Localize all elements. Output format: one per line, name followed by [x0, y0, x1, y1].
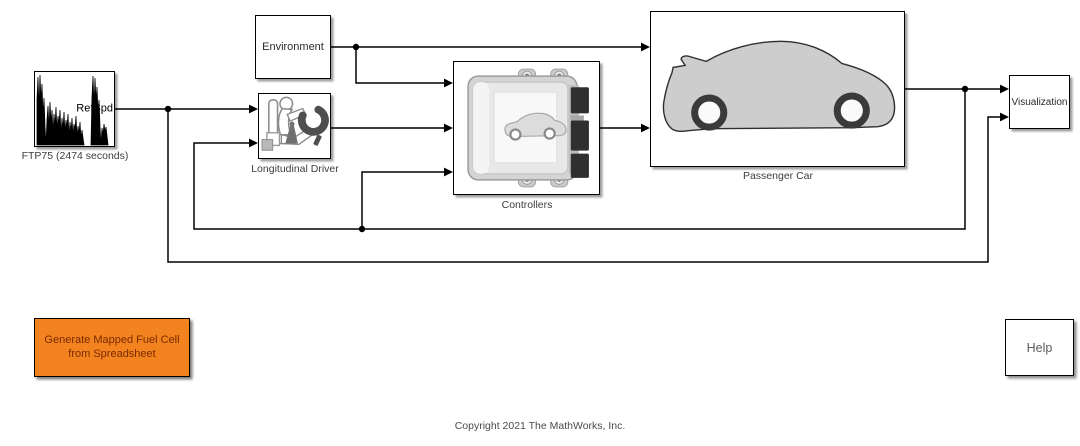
car-front-wheel: [837, 96, 866, 125]
junction-dot: [962, 86, 968, 92]
ecu-connectors: [569, 85, 589, 178]
driver-icon: [259, 94, 330, 158]
block-caption-controllers: Controllers: [441, 199, 613, 211]
block-visualization[interactable]: Visualization: [1009, 75, 1070, 129]
generate-button-line2: from Spreadsheet: [68, 348, 155, 362]
environment-block-title: Environment: [262, 41, 324, 53]
ecu-icon: [454, 62, 599, 194]
block-environment[interactable]: Environment: [255, 15, 331, 79]
junction-dot: [359, 226, 365, 232]
help-button-label: Help: [1027, 341, 1053, 355]
arrowhead: [1000, 113, 1009, 122]
generate-mapped-fuel-cell-button[interactable]: Generate Mapped Fuel Cell from Spreadshe…: [34, 318, 190, 377]
block-passenger-car[interactable]: [650, 11, 905, 167]
arrowhead: [444, 124, 453, 133]
arrowhead: [641, 124, 650, 133]
block-caption-passenger-car: Passenger Car: [692, 170, 864, 182]
simulink-model-canvas: RefSpd FTP75 (2474 seconds) Environment …: [0, 0, 1080, 446]
arrowhead: [249, 139, 258, 148]
generate-button-line1: Generate Mapped Fuel Cell: [44, 334, 179, 348]
block-longitudinal-driver[interactable]: [258, 93, 331, 159]
junction-dot: [353, 44, 359, 50]
arrowhead: [444, 168, 453, 177]
arrowhead: [641, 43, 650, 52]
block-controllers[interactable]: [453, 61, 600, 195]
car-rear-wheel: [695, 98, 724, 127]
arrowhead: [249, 105, 258, 114]
block-caption-longitudinal-driver: Longitudinal Driver: [209, 163, 381, 175]
arrowhead: [1000, 85, 1009, 94]
junction-dot: [165, 106, 171, 112]
block-caption-ftp75: FTP75 (2474 seconds): [0, 150, 161, 162]
wire-environment-to-controllers: [356, 47, 444, 83]
wire-feedback-to-controllers: [362, 172, 444, 229]
visualization-block-title: Visualization: [1012, 97, 1068, 108]
copyright-text: Copyright 2021 The MathWorks, Inc.: [0, 420, 1080, 432]
arrowhead: [444, 79, 453, 88]
car-icon: [651, 12, 904, 166]
help-button[interactable]: Help: [1005, 319, 1074, 376]
port-label-refspd: RefSpd: [76, 104, 113, 115]
block-drive-cycle-ftp75[interactable]: RefSpd: [34, 71, 115, 147]
